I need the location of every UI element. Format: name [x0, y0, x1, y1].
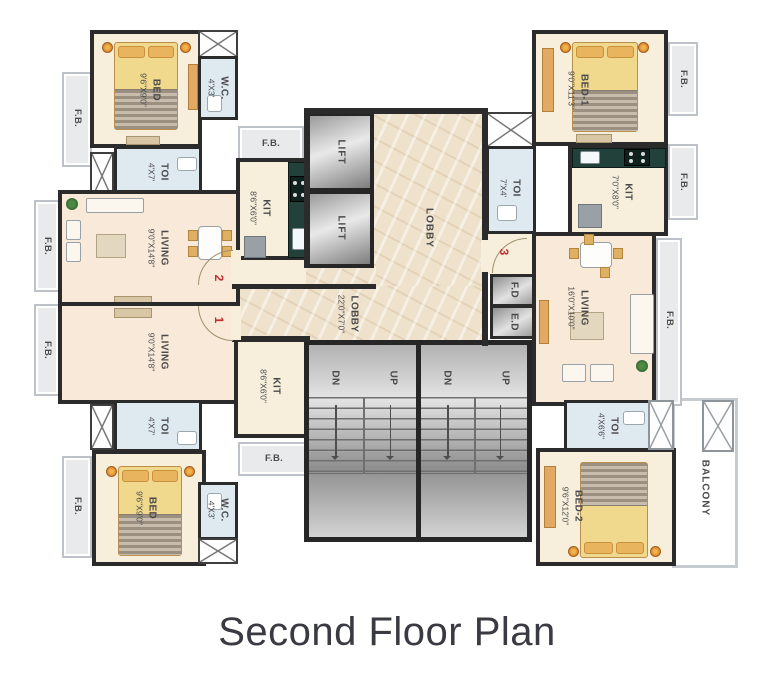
fb-label: F.B. — [677, 70, 689, 88]
wall-segment — [482, 108, 488, 346]
armchair-furniture — [562, 364, 586, 382]
fb-label: F.B. — [71, 497, 83, 515]
wardrobe-furniture — [544, 466, 556, 528]
room-living-flat3 — [532, 232, 656, 406]
duct-shaft — [648, 400, 674, 450]
armchair-furniture — [66, 220, 81, 240]
lamp-icon — [184, 466, 195, 477]
wall-segment — [304, 108, 488, 114]
stair-up-label: UP — [498, 371, 511, 386]
duct-shaft — [198, 30, 238, 58]
up-arrow-icon — [390, 405, 392, 457]
duct-shaft — [486, 112, 536, 148]
lobby-dims-label: LOBBY22'0"X7'0" — [336, 295, 359, 334]
pillow — [607, 46, 635, 58]
stair-divider — [474, 397, 476, 473]
pillows — [584, 542, 644, 554]
toilet-fixture — [623, 411, 645, 425]
room-label-kitchen-top-right: KIT7'0"X8'0" — [610, 175, 633, 209]
platform-icon — [578, 204, 602, 228]
plant-icon — [636, 360, 648, 372]
fb-label: F.B. — [71, 109, 83, 127]
chair-furniture — [222, 230, 232, 241]
flat-number-2: 2 — [212, 275, 226, 282]
lamp-icon — [102, 42, 113, 53]
plan-title: Second Floor Plan — [218, 610, 556, 655]
floor-plan: BED9'6"X9'0" W.C.4'X3' TOI4'X7' KIT8'6"X… — [0, 0, 774, 688]
room-bed2-bottom-right — [536, 448, 676, 566]
duct-shaft — [702, 400, 734, 452]
ed-label: E.D — [507, 313, 520, 331]
room-label-kitchen-bottom-left: KIT8'6"X6'0" — [258, 369, 281, 403]
fb-label: F.B. — [265, 453, 283, 465]
fb-label: F.B. — [677, 173, 689, 191]
lobby-horizontal-floor — [236, 286, 484, 342]
balcony-label: BALCONY — [698, 460, 711, 516]
dresser-furniture — [126, 136, 160, 145]
pillow — [122, 470, 149, 482]
flat-number-3: 3 — [497, 249, 511, 256]
pillow — [616, 542, 645, 554]
sink-icon — [580, 151, 600, 164]
fb-label: F.B. — [41, 237, 53, 255]
wall-segment — [232, 337, 310, 342]
pillows — [118, 46, 174, 58]
room-kitchen-top-left — [236, 158, 312, 260]
wardrobe-furniture — [188, 64, 198, 110]
stair-dn-label: DN — [328, 370, 341, 385]
room-label-toi-top-right: TOI7'X4' — [498, 179, 521, 197]
chair-furniture — [569, 248, 579, 259]
tv-unit — [114, 308, 152, 318]
stair-dn-label: DN — [440, 370, 453, 385]
room-label-wc-bottom-left: W.C.4'X3' — [206, 498, 229, 521]
armchair-furniture — [66, 242, 81, 262]
burner-icon — [629, 159, 633, 163]
fb-label: F.B. — [41, 341, 53, 359]
room-label-bed-top-left: BED9'6"X9'0" — [138, 73, 161, 107]
fridge-icon — [244, 236, 266, 258]
chair-furniture — [613, 248, 623, 259]
lamp-icon — [638, 42, 649, 53]
lamp-icon — [106, 466, 117, 477]
blanket — [581, 463, 647, 506]
pillow — [152, 470, 179, 482]
lift-label: LIFT — [334, 215, 347, 240]
dresser-furniture — [576, 134, 612, 143]
fd-label: F.D — [507, 282, 520, 298]
lamp-icon — [650, 546, 661, 557]
bed-furniture — [580, 462, 648, 558]
stair-divider — [363, 397, 365, 473]
staircase-left — [304, 340, 422, 542]
burner-icon — [293, 181, 297, 185]
pillow — [576, 46, 604, 58]
plant-icon — [66, 198, 78, 210]
passage-flat2 — [236, 260, 306, 286]
pillow — [118, 46, 145, 58]
room-bed1-top-right — [532, 30, 668, 146]
coffee-table — [96, 234, 126, 258]
down-arrow-icon — [335, 405, 337, 457]
lamp-icon — [568, 546, 579, 557]
chair-furniture — [188, 246, 198, 257]
burner-icon — [293, 193, 297, 197]
pillows — [576, 46, 634, 58]
duct-shaft — [198, 538, 238, 564]
room-label-bed2-bottom-right: BED-29'6"X12'0" — [560, 487, 583, 526]
sofa-furniture — [86, 198, 144, 213]
stair-up-label: UP — [386, 371, 399, 386]
toilet-fixture — [497, 205, 517, 221]
sofa-furniture — [630, 294, 654, 354]
room-label-wc-top-left: W.C.4'X3' — [206, 76, 229, 99]
burner-icon — [629, 152, 633, 156]
toilet-fixture — [177, 157, 197, 171]
room-label-kitchen-top-left: KIT8'6"X6'0" — [248, 191, 271, 225]
room-label-toi-bottom-left: TOI4'X7' — [146, 417, 169, 435]
dining-table — [580, 242, 612, 268]
stove-icon — [624, 149, 650, 166]
room-label-living-flat2: LIVING9'0"X14'8" — [146, 229, 169, 268]
door-opening-flat3 — [481, 240, 491, 272]
fb-label: F.B. — [262, 138, 280, 150]
lamp-icon — [180, 42, 191, 53]
chair-furniture — [600, 267, 610, 278]
wall-segment — [232, 284, 376, 289]
armchair-furniture — [590, 364, 614, 382]
duct-shaft — [90, 404, 114, 450]
pillow — [584, 542, 613, 554]
lobby-label: LOBBY — [422, 208, 435, 248]
room-label-toi-top-left: TOI4'X7' — [146, 163, 169, 181]
chair-furniture — [584, 234, 594, 245]
lift-label: LIFT — [334, 139, 347, 164]
staircase-right — [416, 340, 532, 542]
lamp-icon — [560, 42, 571, 53]
burner-icon — [641, 152, 645, 156]
pillows — [122, 470, 178, 482]
down-arrow-icon — [447, 405, 449, 457]
room-label-bed1-top-right: BED-19'0"X11'3" — [566, 71, 589, 109]
fb-label: F.B. — [663, 311, 675, 329]
toilet-fixture — [177, 431, 197, 445]
wardrobe-furniture — [542, 48, 554, 112]
sideboard-furniture — [539, 300, 549, 344]
pillow — [148, 46, 175, 58]
room-label-bed-bottom-left: BED9'6"X9'0" — [134, 491, 157, 525]
room-label-living-flat1: LIVING9'0"X14'8" — [146, 333, 169, 372]
room-label-toi-bottom-right: TOI4'X6'6" — [596, 413, 619, 439]
room-label-living-flat3: LIVING16'0"X10'0" — [566, 286, 589, 329]
flat-number-1: 1 — [212, 317, 226, 324]
burner-icon — [641, 159, 645, 163]
wall-segment — [304, 108, 310, 268]
up-arrow-icon — [500, 405, 502, 457]
chair-furniture — [188, 230, 198, 241]
